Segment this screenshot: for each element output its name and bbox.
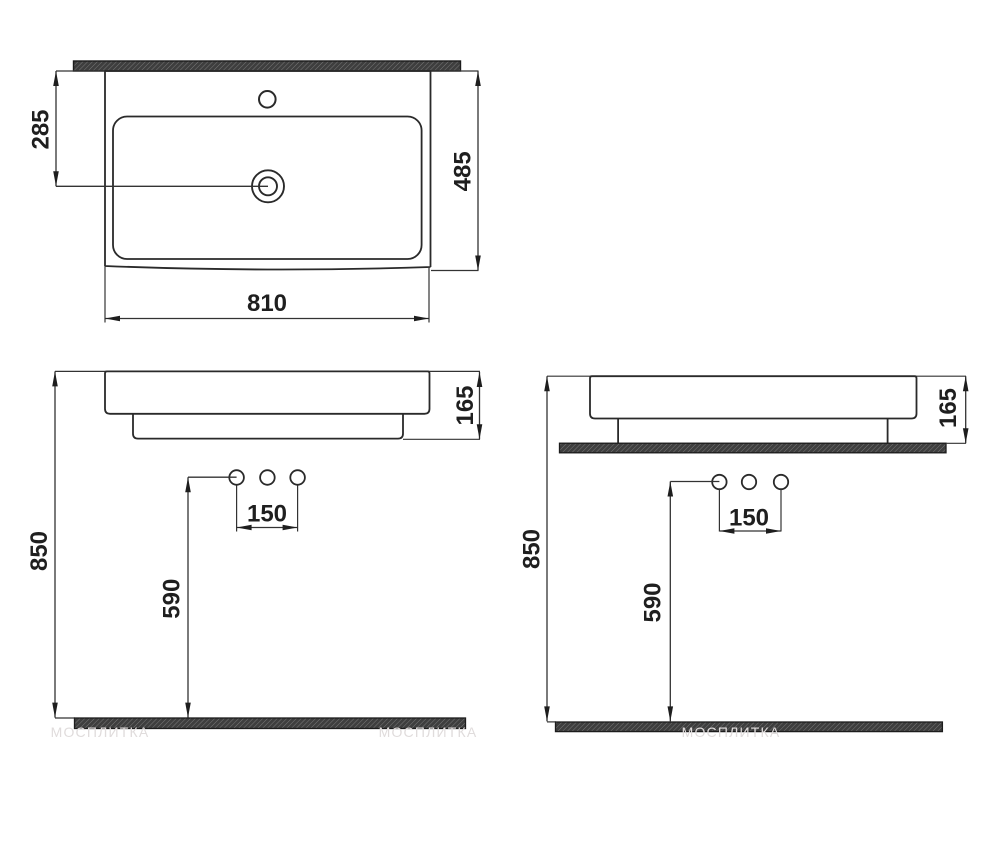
svg-text:485: 485	[450, 151, 477, 191]
svg-text:810: 810	[247, 290, 287, 317]
svg-text:285: 285	[28, 109, 55, 149]
svg-text:165: 165	[452, 385, 479, 425]
svg-text:150: 150	[729, 505, 769, 532]
svg-text:590: 590	[159, 579, 186, 619]
svg-text:165: 165	[935, 388, 962, 428]
svg-text:150: 150	[247, 501, 287, 528]
svg-text:МОСПЛИТКА: МОСПЛИТКА	[379, 724, 478, 740]
svg-text:МОСПЛИТКА: МОСПЛИТКА	[51, 724, 150, 740]
svg-text:850: 850	[26, 531, 53, 571]
svg-text:590: 590	[640, 582, 667, 622]
svg-text:850: 850	[519, 529, 546, 569]
svg-text:МОСПЛИТКА: МОСПЛИТКА	[682, 724, 781, 740]
